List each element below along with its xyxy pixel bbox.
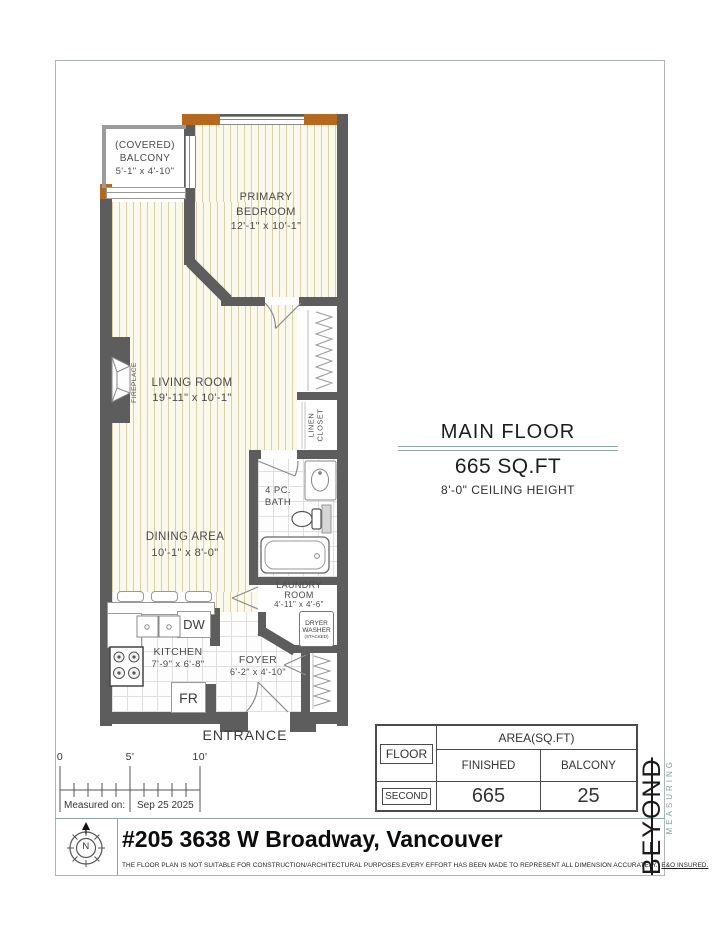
fireplace-label: FIREPLACE [126, 342, 142, 422]
entrance-opening [246, 712, 290, 724]
linen-label-line2: CLOSET [316, 408, 325, 441]
corridor-floor [216, 592, 258, 612]
bedroom-window [220, 116, 304, 125]
dining-area-dims: 10'-1" x 8'-0" [115, 547, 255, 559]
bedroom-closet-floor [297, 306, 337, 392]
stacked-label: (STACKED) [305, 634, 329, 639]
kitchen-counter-left [107, 613, 142, 648]
ceiling-height: 8'-0" CEILING HEIGHT [398, 484, 618, 497]
balcony-value-cell: 25 [541, 781, 636, 810]
bath-floor [258, 459, 337, 577]
scale-tick-5: 5' [122, 752, 138, 764]
linen-closet-label: LINEN CLOSET [294, 398, 338, 452]
washer-label: WASHER [302, 627, 330, 634]
dining-area-label: DINING AREA [115, 531, 255, 544]
foyer-closet-floor [310, 650, 337, 712]
disclaimer-text: THE FLOOR PLAN IS NOT SUITABLE FOR CONST… [122, 862, 658, 869]
compass-box-divider [117, 818, 118, 875]
bar-stool [151, 591, 178, 602]
closet-top-wall [299, 297, 337, 306]
living-room-dims: 19'-11" x 10'-1" [122, 392, 262, 404]
laundry-dims: 4'-11" x 4'-6" [264, 601, 334, 610]
dryer-label: DRYER [305, 620, 328, 627]
washer-dryer-stack: DRYER WASHER (STACKED) [299, 611, 334, 647]
logo-measuring: MEASURING [665, 759, 675, 834]
fridge-label: FR [179, 690, 198, 706]
measured-on-label: Measured on: [64, 800, 125, 811]
primary-bedroom-dims: 12'-1" x 10'-1" [196, 221, 336, 233]
fridge: FR [171, 682, 206, 713]
balcony-label-line1: (COVERED) [104, 140, 186, 151]
listing-title: #205 3638 W Broadway, Vancouver [122, 826, 503, 853]
laundry-left-wall [258, 612, 266, 636]
balcony-top-wall [102, 125, 186, 129]
beyond-measuring-logo: BEYOND MEASURING [639, 755, 675, 875]
bath-label-line2: BATH [255, 498, 301, 508]
floor-title: MAIN FLOOR [398, 421, 618, 443]
finished-value-cell: 665 [437, 781, 541, 810]
kitchen-wall-stub-lower [206, 684, 216, 712]
balcony-header-cell: BALCONY [541, 750, 636, 781]
bar-stool [185, 591, 212, 602]
foyer-dims: 6'-2" x 4'-10" [213, 668, 303, 678]
disclaimer: THE FLOOR PLAN IS NOT SUITABLE FOR CONST… [122, 862, 642, 869]
bath-label-line1: 4 PC. [255, 486, 301, 496]
floor-value-cell: SECOND [377, 781, 437, 810]
area-table: FLOOR AREA(SQ.FT) FINISHED BALCONY SECON… [375, 724, 638, 812]
dishwasher: DW [177, 611, 211, 638]
finished-header-cell: FINISHED [437, 750, 541, 781]
foyer-label: FOYER [213, 655, 303, 667]
compass-north-letter: N [78, 842, 94, 852]
area-table-floor-header-cell: FLOOR [377, 726, 437, 781]
entrance-label: ENTRANCE [185, 728, 305, 743]
dishwasher-label: DW [183, 617, 205, 632]
floor-title-rule [398, 446, 618, 451]
balcony-dims: 5'-1" x 4'-10" [104, 167, 186, 177]
bar-stool [117, 591, 144, 602]
primary-bedroom-label-line2: BEDROOM [196, 206, 336, 218]
bedroom-side-window [185, 136, 196, 188]
bath-left-wall [249, 450, 258, 585]
primary-bedroom-label-line1: PRIMARY [196, 191, 336, 203]
floor-plan-page: DW FR DRYER WASHER (STACKED) [0, 0, 720, 931]
balcony-label-line2: BALCONY [104, 153, 186, 164]
balcony-railing [106, 187, 186, 199]
scale-tick-10: 10' [190, 752, 210, 764]
scale-tick-0: 0 [52, 752, 68, 764]
floor-header: FLOOR [380, 744, 433, 764]
footer-divider [55, 818, 665, 819]
living-room-label: LIVING ROOM [122, 377, 262, 390]
logo-beyond: BEYOND [640, 755, 665, 875]
hall-top-wall [221, 297, 265, 306]
measured-on-date: Sep 25 2025 [137, 800, 194, 811]
right-wall [337, 114, 348, 726]
floor-value: SECOND [382, 788, 431, 805]
area-header-cell: AREA(SQ.FT) [437, 726, 636, 750]
floor-area: 665 SQ.FT [398, 455, 618, 478]
top-wall-wood-accent-left [182, 114, 220, 125]
